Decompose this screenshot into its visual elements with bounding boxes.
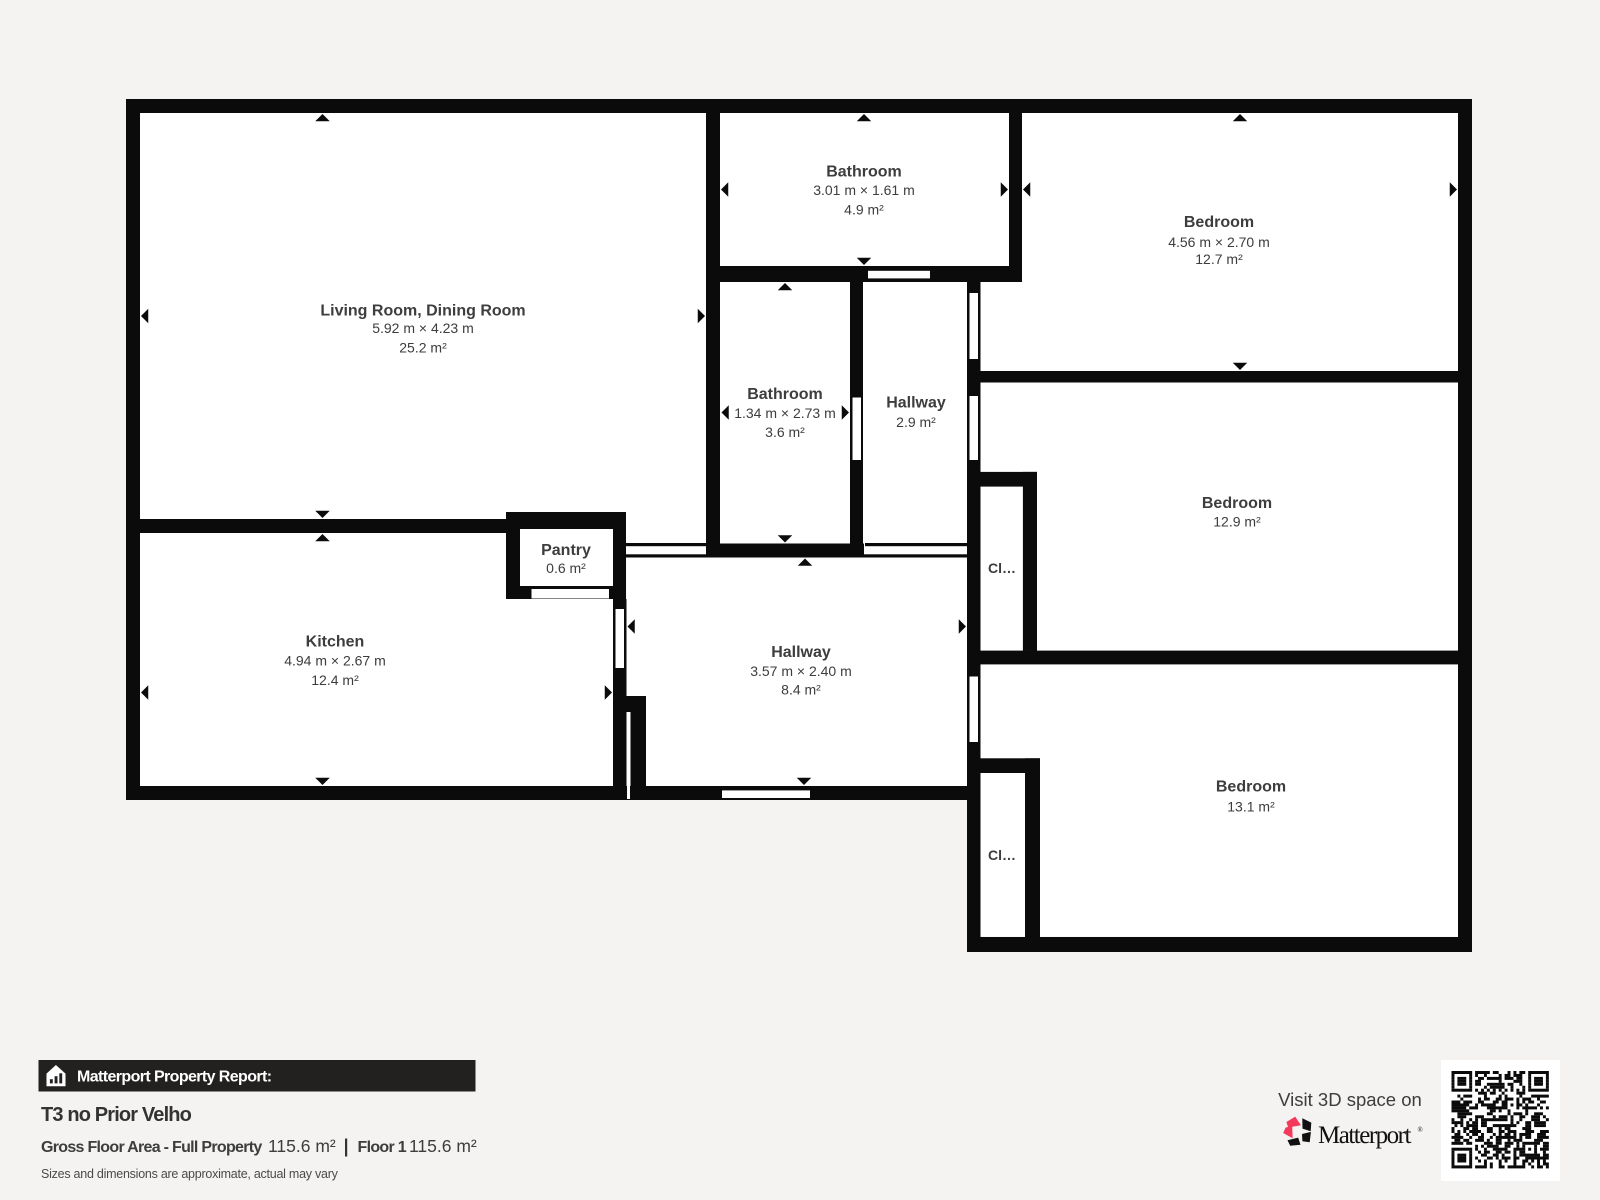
svg-text:4.56 m × 2.70 m: 4.56 m × 2.70 m: [1168, 234, 1270, 250]
svg-text:Hallway: Hallway: [771, 644, 831, 661]
svg-text:T3 no Prior Velho: T3 no Prior Velho: [41, 1104, 192, 1126]
svg-text:Cl…: Cl…: [988, 847, 1016, 863]
svg-text:Matterport Property Report:: Matterport Property Report:: [77, 1069, 271, 1086]
svg-text:Bedroom: Bedroom: [1202, 495, 1272, 512]
svg-text:Matterport: Matterport: [1318, 1122, 1411, 1149]
svg-text:3.57 m × 2.40 m: 3.57 m × 2.40 m: [750, 663, 852, 679]
svg-text:8.4 m²: 8.4 m²: [781, 682, 821, 698]
svg-text:12.9 m²: 12.9 m²: [1213, 514, 1261, 530]
svg-text:12.4 m²: 12.4 m²: [311, 672, 359, 688]
svg-text:4.94 m × 2.67 m: 4.94 m × 2.67 m: [284, 653, 386, 669]
svg-text:Gross Floor Area - Full Proper: Gross Floor Area - Full Property: [41, 1139, 262, 1156]
svg-text:4.9 m²: 4.9 m²: [844, 202, 884, 218]
svg-text:115.6 m²: 115.6 m²: [409, 1136, 477, 1156]
svg-text:12.7 m²: 12.7 m²: [1195, 251, 1243, 267]
svg-text:5.92 m × 4.23 m: 5.92 m × 4.23 m: [372, 320, 474, 336]
svg-text:1.34 m × 2.73 m: 1.34 m × 2.73 m: [734, 405, 836, 421]
svg-text:25.2 m²: 25.2 m²: [399, 340, 447, 356]
svg-text:2.9 m²: 2.9 m²: [896, 414, 936, 430]
svg-text:Kitchen: Kitchen: [306, 634, 365, 651]
svg-text:115.6 m²: 115.6 m²: [268, 1136, 336, 1156]
svg-text:®: ®: [1418, 1126, 1424, 1134]
svg-text:Hallway: Hallway: [886, 395, 946, 412]
svg-text:Living Room, Dining Room: Living Room, Dining Room: [320, 303, 525, 320]
svg-text:Pantry: Pantry: [541, 542, 591, 559]
svg-text:Bedroom: Bedroom: [1184, 214, 1254, 231]
svg-text:Sizes and dimensions are appro: Sizes and dimensions are approximate, ac…: [41, 1167, 339, 1181]
svg-text:Bathroom: Bathroom: [826, 164, 902, 181]
svg-text:0.6 m²: 0.6 m²: [546, 560, 586, 576]
svg-text:13.1 m²: 13.1 m²: [1227, 799, 1275, 815]
svg-text:Visit 3D space on: Visit 3D space on: [1278, 1089, 1422, 1110]
svg-text:Floor 1: Floor 1: [358, 1139, 407, 1156]
svg-text:Cl…: Cl…: [988, 560, 1016, 576]
svg-text:3.6 m²: 3.6 m²: [765, 424, 805, 440]
svg-text:Bathroom: Bathroom: [747, 386, 823, 403]
svg-text:3.01 m × 1.61 m: 3.01 m × 1.61 m: [813, 182, 915, 198]
svg-text:Bedroom: Bedroom: [1216, 779, 1286, 796]
